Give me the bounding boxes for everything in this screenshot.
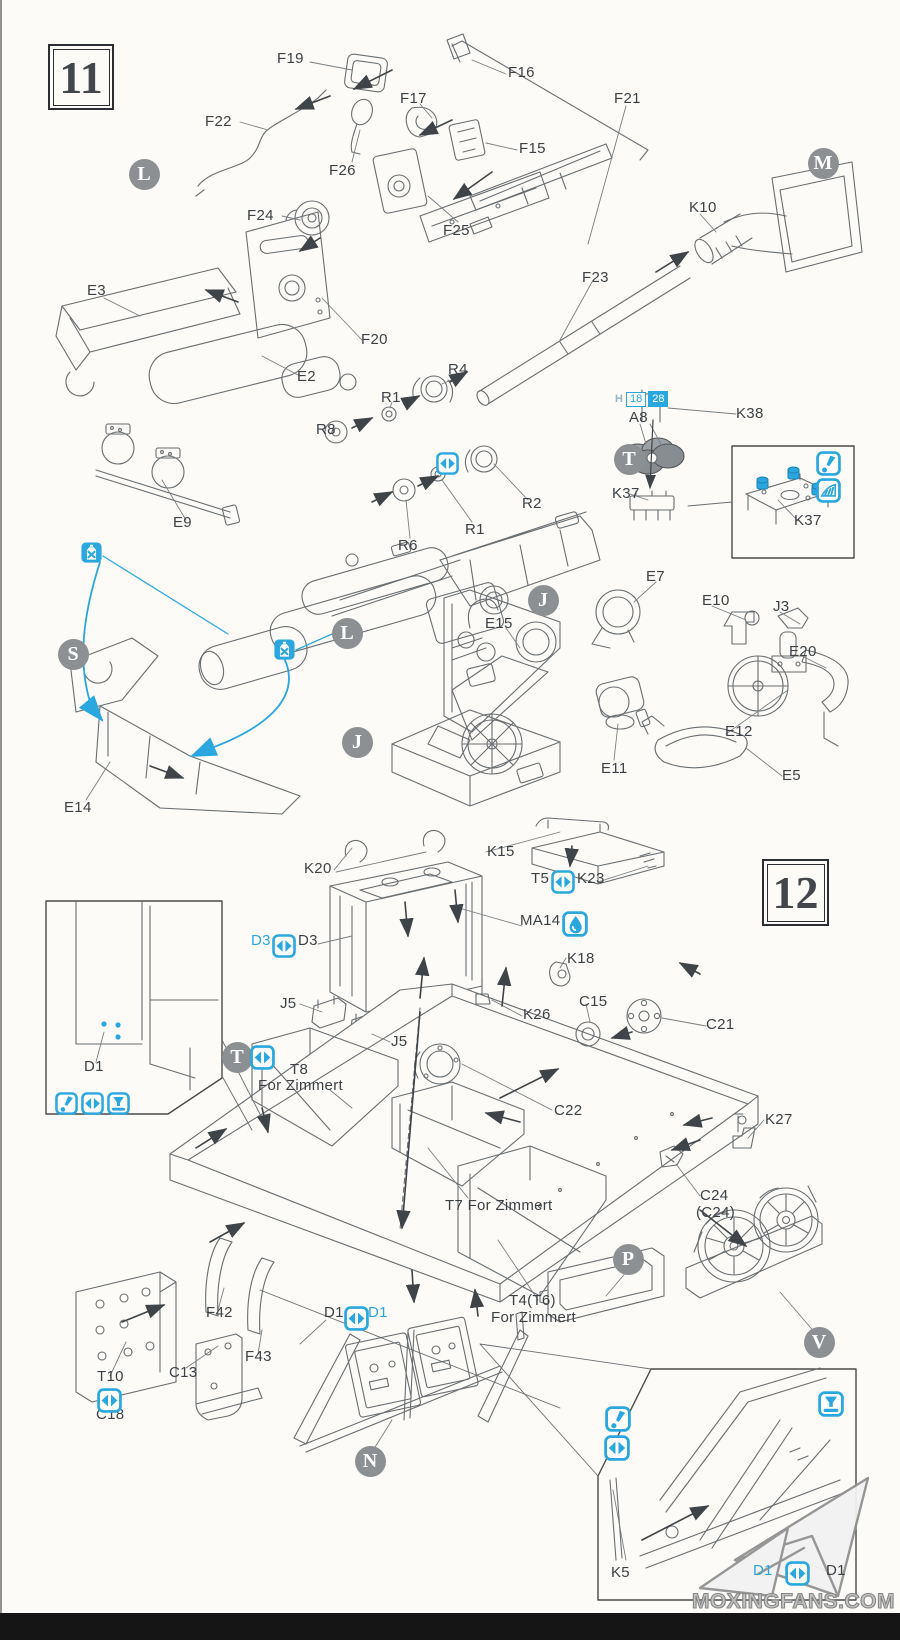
swap-icon bbox=[97, 1388, 122, 1413]
part-label: D1 bbox=[368, 1305, 388, 1320]
part-label: E10 bbox=[702, 593, 730, 608]
part-label: T8 bbox=[290, 1062, 308, 1077]
part-label: F16 bbox=[508, 65, 535, 80]
swap-icon bbox=[250, 1045, 275, 1070]
part-label: F15 bbox=[519, 141, 546, 156]
swap-icon bbox=[272, 934, 296, 958]
part-label: For Zimmert bbox=[258, 1078, 343, 1093]
part-label: R1 bbox=[465, 522, 485, 537]
part-label: R2 bbox=[522, 496, 542, 511]
part-label: E9 bbox=[173, 515, 192, 530]
part-label: C15 bbox=[579, 994, 607, 1009]
assembly-letter-badge: V bbox=[804, 1327, 835, 1358]
assembly-letter-badge: L bbox=[332, 618, 363, 649]
assembly-letter-badge: M bbox=[808, 148, 839, 179]
assembly-letter-badge: J bbox=[528, 585, 559, 616]
part-label: F26 bbox=[329, 163, 356, 178]
part-label: T10 bbox=[97, 1369, 124, 1384]
part-label: J3 bbox=[773, 599, 789, 614]
part-label: F42 bbox=[206, 1305, 233, 1320]
drill-icon bbox=[818, 1391, 844, 1417]
gun-barrel-assembly bbox=[475, 162, 862, 407]
paint-code-left: 18 bbox=[626, 392, 646, 407]
part-label: E3 bbox=[87, 283, 106, 298]
step-12-inner-border: 12 bbox=[767, 864, 825, 922]
watermark-text: MOXINGFANS.COM bbox=[560, 1590, 895, 1614]
left-trail-e14 bbox=[70, 638, 300, 814]
part-label: F24 bbox=[247, 208, 274, 223]
part-label: R1 bbox=[381, 390, 401, 405]
part-label: T7 For Zimmert bbox=[445, 1198, 553, 1213]
noglue-icon bbox=[81, 542, 102, 563]
part-label: F19 bbox=[277, 51, 304, 66]
d1-drill-inset bbox=[46, 901, 262, 1130]
diagram-line-art: > bbox=[0, 0, 900, 1640]
part-label: C24 bbox=[700, 1188, 728, 1203]
assembly-letter-badge: S bbox=[58, 639, 89, 670]
part-label: E2 bbox=[297, 369, 316, 384]
part-label: K27 bbox=[765, 1112, 793, 1127]
part-label: K26 bbox=[523, 1007, 551, 1022]
swap-icon bbox=[436, 452, 459, 475]
part-label: K15 bbox=[487, 844, 515, 859]
assembly-letter-badge: N bbox=[355, 1446, 386, 1477]
part-label: R6 bbox=[398, 538, 418, 553]
drill-icon bbox=[107, 1092, 130, 1115]
noglue-icon bbox=[274, 639, 295, 660]
assembly-letter-badge: T bbox=[614, 444, 645, 475]
step-12-number: 12 bbox=[773, 866, 819, 919]
step-12-box: 12 bbox=[762, 859, 829, 926]
part-label: E20 bbox=[789, 644, 817, 659]
step-11-number: 11 bbox=[59, 51, 102, 104]
instruction-sheet-page: > bbox=[0, 0, 900, 1640]
bottom-black-bar bbox=[0, 1613, 900, 1640]
excl-icon bbox=[816, 451, 841, 476]
part-label: K10 bbox=[689, 200, 717, 215]
paint-color-callout: H 18 28 bbox=[615, 391, 668, 407]
part-label: E5 bbox=[782, 768, 801, 783]
swap-icon bbox=[604, 1435, 630, 1461]
part-label: F17 bbox=[400, 91, 427, 106]
part-label: D1 bbox=[753, 1563, 773, 1578]
part-label: F25 bbox=[443, 223, 470, 238]
trim-icon bbox=[816, 478, 841, 503]
part-label: E7 bbox=[646, 569, 665, 584]
part-label: D3 bbox=[298, 933, 318, 948]
cradle-and-recoil-parts bbox=[56, 268, 356, 525]
part-label: T5 bbox=[531, 871, 549, 886]
assembly-letter-badge: P bbox=[613, 1244, 644, 1275]
assembly-letter-badge: T bbox=[222, 1042, 253, 1073]
part-label: (C24) bbox=[696, 1205, 735, 1220]
part-label: MA14 bbox=[520, 913, 560, 928]
part-label: E15 bbox=[485, 616, 513, 631]
part-label: K37 bbox=[794, 513, 822, 528]
part-label: A8 bbox=[629, 410, 648, 425]
part-label: K37 bbox=[612, 486, 640, 501]
part-label: D1 bbox=[826, 1563, 846, 1578]
part-label: F43 bbox=[245, 1349, 272, 1364]
part-label: J5 bbox=[280, 996, 296, 1011]
part-label: K23 bbox=[577, 871, 605, 886]
swap-icon bbox=[551, 870, 575, 894]
part-label: R4 bbox=[448, 362, 468, 377]
part-label: J5 bbox=[391, 1034, 407, 1049]
part-label: C22 bbox=[554, 1103, 582, 1118]
swap-icon bbox=[344, 1306, 369, 1331]
part-label: D1 bbox=[84, 1059, 104, 1074]
part-label: K20 bbox=[304, 861, 332, 876]
gun-mount-j bbox=[392, 599, 560, 806]
part-label: E14 bbox=[64, 800, 92, 815]
part-label: F21 bbox=[614, 91, 641, 106]
paint-code-right: 28 bbox=[648, 391, 668, 407]
part-label: F20 bbox=[361, 332, 388, 347]
assembly-letter-badge: J bbox=[342, 727, 373, 758]
part-label: F23 bbox=[582, 270, 609, 285]
d1-drill-points bbox=[101, 1021, 120, 1039]
excl-icon bbox=[605, 1406, 631, 1432]
part-label: D1 bbox=[324, 1305, 344, 1320]
excl-icon bbox=[55, 1092, 78, 1115]
recoil-spools bbox=[325, 376, 497, 501]
assembly-letter-badge: L bbox=[129, 159, 160, 190]
part-label: C13 bbox=[169, 1365, 197, 1380]
part-label: For Zimmert bbox=[491, 1310, 576, 1325]
part-label: R8 bbox=[316, 422, 336, 437]
step-11-box: 11 bbox=[48, 44, 114, 110]
swap-icon bbox=[785, 1561, 810, 1586]
part-label: C21 bbox=[706, 1017, 734, 1032]
glue-icon bbox=[562, 911, 588, 937]
swap-icon bbox=[81, 1092, 104, 1115]
part-label: E11 bbox=[601, 761, 627, 776]
part-label: K38 bbox=[736, 406, 764, 421]
part-label: D3 bbox=[251, 933, 271, 948]
hull-floor bbox=[170, 978, 758, 1302]
step-11-inner-border: 11 bbox=[53, 49, 110, 106]
part-label: T4(T6) bbox=[509, 1293, 556, 1308]
leader-lines bbox=[86, 60, 828, 1572]
part-label: K5 bbox=[611, 1565, 630, 1580]
part-label: F22 bbox=[205, 114, 232, 129]
part-label: E12 bbox=[725, 724, 753, 739]
paint-brand-code: H bbox=[615, 393, 623, 405]
part-label: K18 bbox=[567, 951, 595, 966]
